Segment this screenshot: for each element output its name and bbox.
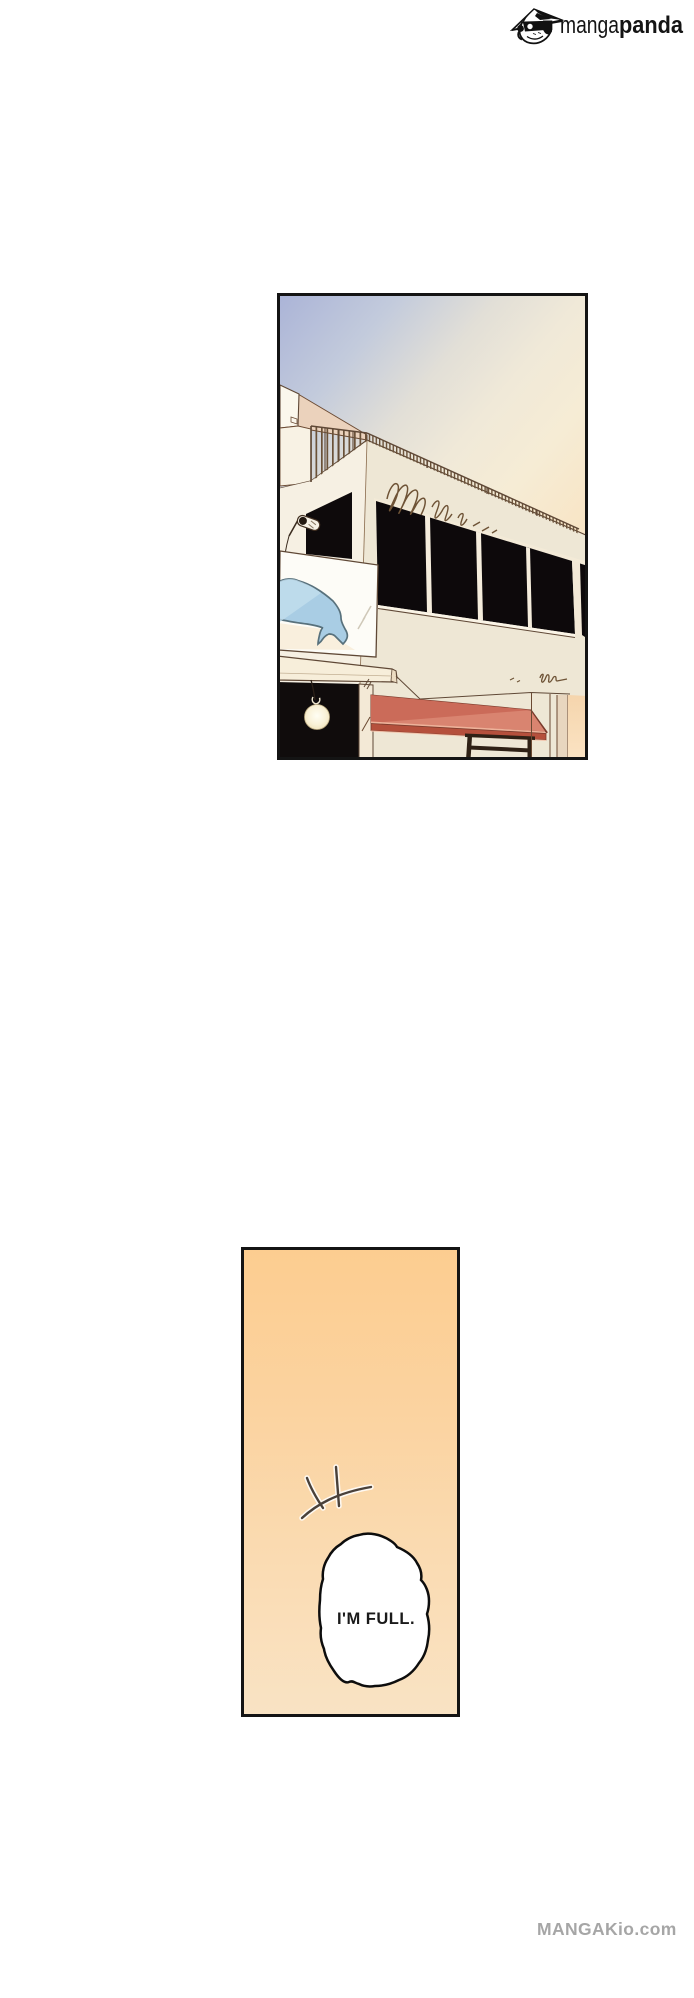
svg-text:I'M FULL.: I'M FULL. <box>337 1610 415 1628</box>
svg-text:panda: panda <box>619 12 684 39</box>
svg-text:manga: manga <box>560 12 620 39</box>
